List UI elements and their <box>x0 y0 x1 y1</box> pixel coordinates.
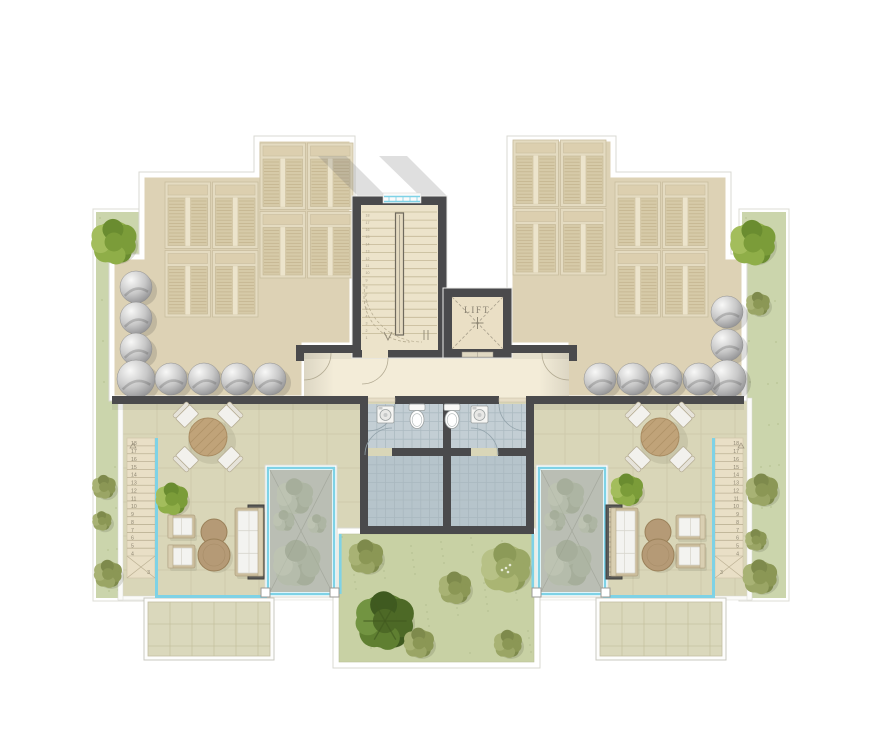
toilet-icon <box>444 404 460 429</box>
plan-text: 14 <box>366 242 370 246</box>
louver-skylight-panel <box>513 140 559 207</box>
glass-railing <box>532 534 535 594</box>
courtyard-void-right <box>536 465 608 597</box>
louver-skylight-panel <box>663 182 709 249</box>
armchair <box>676 515 707 542</box>
courtyard-void-left <box>265 465 337 597</box>
door-threshold <box>368 398 395 402</box>
louver-skylight-panel <box>308 212 354 279</box>
dining-table <box>641 418 679 456</box>
plan-text: 3 <box>366 322 368 326</box>
plan-text: 15 <box>366 235 370 239</box>
plan-text: 8 <box>736 520 739 526</box>
canopy-grid <box>148 602 270 656</box>
plan-text: 16 <box>733 457 739 463</box>
corner-post <box>601 588 610 597</box>
plan-text: 5 <box>736 544 739 550</box>
armchair <box>676 544 707 571</box>
louver-skylight-panel <box>260 143 306 210</box>
plan-text: 7 <box>736 528 739 534</box>
louver-skylight-panel <box>213 182 259 249</box>
plan-text: 14 <box>733 473 739 479</box>
roof-plan-stage: 1817161514131211109876543181716151413121… <box>0 0 882 735</box>
plan-text: 6 <box>131 536 134 542</box>
outer-stair-right: 1817161514131211109876543 <box>715 438 744 578</box>
outer-stair-left: 1817161514131211109876543 <box>127 438 155 578</box>
plan-text: 11 <box>366 264 370 268</box>
wall <box>451 448 471 456</box>
louver-skylight-panel <box>165 251 211 318</box>
wall <box>296 345 304 361</box>
wall <box>526 396 744 404</box>
louver-skylight-panel <box>513 209 559 276</box>
plan-text: 15 <box>733 465 739 471</box>
plan-text: 9 <box>131 512 134 518</box>
canopy-grid <box>600 602 722 656</box>
louver-skylight-panel <box>663 251 709 318</box>
plan-text: 14 <box>131 473 137 479</box>
lift-shaft <box>443 288 512 358</box>
corner-post <box>261 588 270 597</box>
louver-skylight-panel <box>260 212 306 279</box>
sofa <box>235 508 265 579</box>
bathrooms <box>360 396 534 534</box>
plan-text: 17 <box>366 221 370 225</box>
louver-skylight-panel <box>561 140 607 207</box>
plan-text: 8 <box>366 286 368 290</box>
louver-skylight-panel <box>165 182 211 249</box>
louver-skylight-panel <box>213 251 259 318</box>
plan-text: 18 <box>733 441 739 447</box>
plan-text: 16 <box>366 228 370 232</box>
plan-text: 5 <box>366 307 368 311</box>
wall <box>361 448 365 456</box>
washing-machine-icon <box>377 406 394 423</box>
plan-text: 4 <box>131 551 134 557</box>
louver-skylight-panel <box>615 182 661 249</box>
plan-text: 17 <box>131 449 137 455</box>
plan-text: 1 <box>366 336 368 340</box>
floor-plan-svg: 1817161514131211109876543181716151413121… <box>0 0 882 735</box>
right-canopy <box>596 598 726 660</box>
plan-text: 6 <box>736 536 739 542</box>
left-canopy <box>144 598 274 660</box>
plan-text: 7 <box>366 293 368 297</box>
wall <box>498 448 526 456</box>
plan-text: 6 <box>366 300 368 304</box>
plan-text: 13 <box>366 250 370 254</box>
plan-text: 9 <box>366 278 368 282</box>
armchair <box>168 545 197 571</box>
dining-table <box>189 418 227 456</box>
plan-text: 4 <box>736 551 739 557</box>
plan-text: 4 <box>366 314 368 318</box>
plan-text: 10 <box>131 504 137 510</box>
wall <box>360 396 368 534</box>
glass-railing <box>339 534 342 594</box>
wall <box>392 448 443 456</box>
louver-skylight-panel <box>615 251 661 318</box>
lift-label: LIFT <box>464 306 490 316</box>
plan-text: 16 <box>131 457 137 463</box>
glass-railing <box>603 595 715 598</box>
toilet-icon <box>409 404 425 429</box>
door-threshold <box>499 398 526 402</box>
plan-text: 17 <box>733 449 739 455</box>
washing-machine-icon <box>471 406 488 423</box>
corner-post <box>330 588 339 597</box>
stair-tower: 123456789101112131415161718 <box>352 193 447 384</box>
plan-text: 5 <box>131 544 134 550</box>
glass-railing <box>712 438 715 598</box>
armchair <box>168 515 197 541</box>
wall <box>569 345 577 361</box>
plan-text: 12 <box>366 257 370 261</box>
plan-text: 9 <box>736 512 739 518</box>
louver-skylight-panel <box>561 209 607 276</box>
tower-door-opening <box>362 350 388 358</box>
wall <box>296 345 355 353</box>
glass-railing <box>155 595 267 598</box>
plan-text: 13 <box>131 481 137 487</box>
plan-text: 18 <box>366 214 370 218</box>
plan-text: 7 <box>131 528 134 534</box>
plan-text: 11 <box>734 496 739 502</box>
plan-text: 12 <box>733 488 739 494</box>
corner-post <box>532 588 541 597</box>
plan-text: 8 <box>131 520 134 526</box>
plan-text: 11 <box>131 496 136 502</box>
wall <box>526 396 534 534</box>
bathroom-floor <box>451 404 526 448</box>
sofa <box>611 508 640 579</box>
plan-text: 3 <box>147 570 150 576</box>
plan-text: 12 <box>131 488 137 494</box>
floor-plan: 1817161514131211109876543181716151413121… <box>91 139 789 668</box>
plan-text: 3 <box>720 570 723 576</box>
plan-text: 2 <box>366 329 368 333</box>
wall <box>112 396 368 404</box>
plan-text: 15 <box>131 465 137 471</box>
plan-text: 10 <box>733 504 739 510</box>
plan-text: 10 <box>366 271 370 275</box>
plan-text: 13 <box>733 481 739 487</box>
wall <box>360 526 534 534</box>
wall <box>510 345 577 353</box>
glass-railing <box>155 438 158 598</box>
